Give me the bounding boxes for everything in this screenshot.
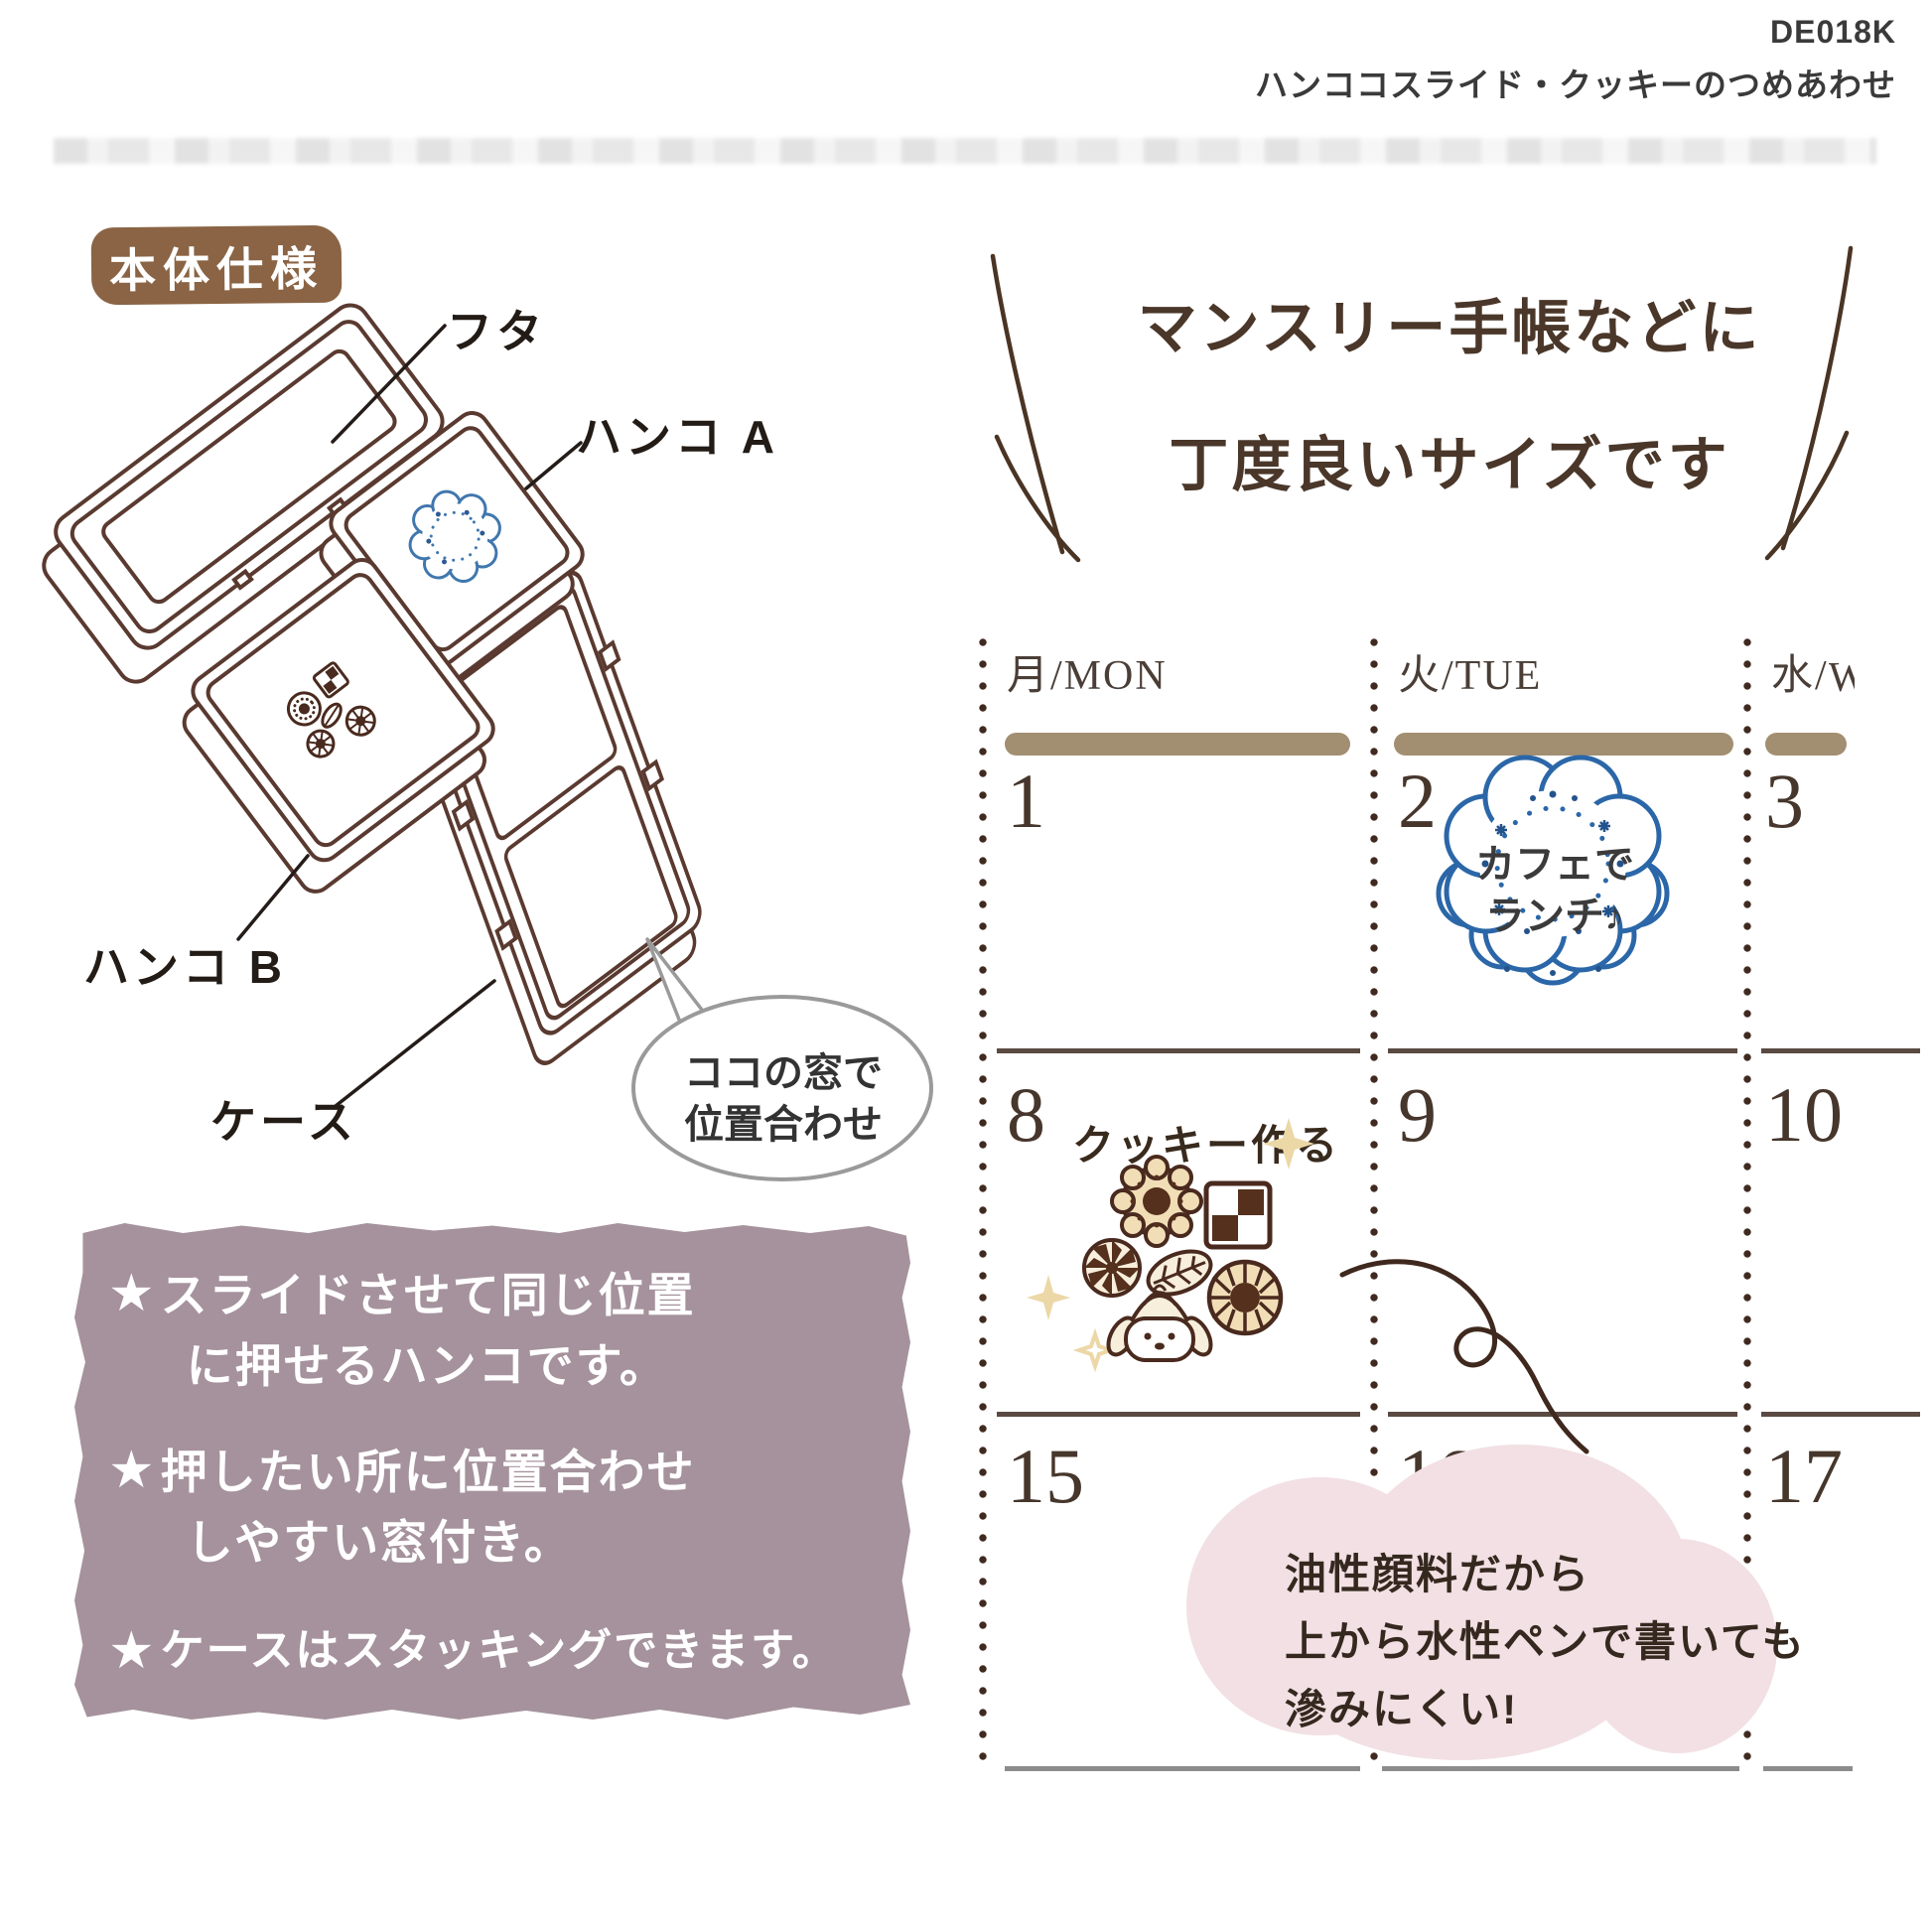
star-icon: ★: [108, 1438, 155, 1505]
calendar-date-16: 16: [1398, 1432, 1475, 1521]
cookie-note-text: クッキー作る: [1072, 1112, 1340, 1173]
calendar-date-9: 9: [1398, 1070, 1437, 1160]
label-stamp-a: ハンコ A: [576, 401, 778, 467]
ink-note-line3: 滲みにくい!: [1285, 1676, 1518, 1736]
calendar-header-bar: [1394, 733, 1733, 756]
calendar-header-bar: [1005, 733, 1350, 756]
loop-doodle: [1342, 1262, 1587, 1451]
emphasis-line: [993, 256, 1062, 552]
case-drawing: [404, 561, 719, 1070]
cafe-stamp-text-line2: ランチ♪: [1416, 884, 1694, 941]
product-name: ハンココスライド・クッキーのつめあわせ: [1255, 59, 1896, 106]
emphasis-line: [997, 437, 1078, 560]
calendar-row-separator: [1388, 1412, 1737, 1417]
header-wed-prefix: 水/: [1771, 653, 1829, 699]
calendar-date-1: 1: [1007, 757, 1045, 846]
pointer-lines: [238, 326, 581, 1106]
calendar-dotted-divider: [1743, 633, 1751, 1767]
cafe-stamp-text-line1: カフェで: [1416, 832, 1694, 890]
crinkle-cookie: [1209, 1262, 1281, 1333]
calendar-bottom-line: [1005, 1766, 1360, 1771]
feature-2-line1: 押したい所に位置合わせ: [161, 1438, 696, 1508]
label-case: ケース: [210, 1086, 357, 1152]
calendar-row-separator: [1761, 1048, 1920, 1053]
calendar-date-3: 3: [1765, 757, 1804, 846]
feature-3-line1: ケースはスタッキングできます。: [161, 1618, 838, 1684]
feature-item: ★ スライドさせて同じ位置 に押せるハンコです。: [108, 1261, 696, 1401]
feature-item: ★ 押したい所に位置合わせ しやすい窓付き。: [108, 1438, 696, 1578]
ink-note-line2: 上から水性ペンで書いても: [1285, 1608, 1806, 1669]
calendar-date-15: 15: [1007, 1432, 1084, 1521]
lid-drawing: [25, 298, 462, 689]
calendar-header-bar: [1765, 733, 1847, 756]
calendar-date-10: 10: [1765, 1070, 1843, 1160]
calendar-dotted-divider: [979, 633, 987, 1767]
calendar-row-separator: [997, 1412, 1360, 1417]
product-code: DE018K: [1255, 14, 1896, 51]
calendar-bottom-line: [1382, 1766, 1739, 1771]
product-header: DE018K ハンココスライド・クッキーのつめあわせ: [1255, 14, 1896, 106]
product-instruction-sheet: DE018K ハンココスライド・クッキーのつめあわせ 本体仕様: [0, 0, 1932, 1932]
calendar-row-separator: [997, 1048, 1360, 1053]
mini-cookie-stamps: [276, 662, 380, 767]
spec-badge: 本体仕様: [91, 225, 343, 306]
ink-note-line1: 油性顔料だから: [1285, 1541, 1590, 1601]
star-icon: ★: [108, 1618, 155, 1686]
label-stamp-b: ハンコ B: [83, 931, 286, 997]
size-heading-line2: 丁度良いサイズです: [1072, 417, 1827, 503]
scan-artifact-band: [54, 138, 1876, 164]
calendar-row-separator: [1761, 1412, 1920, 1417]
feature-item: ★ ケースはスタッキングできます。: [108, 1618, 838, 1686]
label-lid: フタ: [447, 296, 546, 361]
stamp-b-drawing: [166, 554, 511, 898]
stamp-a-drawing: [304, 407, 600, 701]
size-heading-line1: マンスリー手帳などに: [1072, 280, 1827, 366]
feature-1-line2: に押せるハンコです。: [161, 1331, 696, 1402]
star-icon: ★: [108, 1261, 155, 1328]
header-wed-cut-letter: W: [1829, 654, 1855, 702]
calendar-header-tue: 火/TUE: [1398, 641, 1542, 702]
features-box: ★ スライドさせて同じ位置 に押せるハンコです。 ★ 押したい所に位置合わせ し…: [74, 1223, 910, 1720]
calendar-header-wed: 水/W: [1771, 641, 1855, 702]
calendar-bottom-line: [1763, 1766, 1853, 1771]
puppy-cream-cookie: [1103, 1286, 1216, 1360]
calendar-date-8: 8: [1007, 1070, 1045, 1160]
checkered-cookie: [1206, 1183, 1270, 1247]
blue-doily-stamp-face: [394, 476, 516, 598]
bubble-text-line2: 位置合わせ: [659, 1092, 907, 1150]
bubble-text-line1: ココの窓で: [659, 1040, 907, 1098]
calendar-date-17: 17: [1765, 1432, 1843, 1521]
pinwheel-cookie: [1084, 1240, 1140, 1296]
exploded-parts-diagram: [0, 0, 973, 1201]
calendar-header-mon: 月/MON: [1007, 641, 1168, 702]
leaf-cookie: [1142, 1243, 1216, 1303]
calendar-row-separator: [1388, 1048, 1737, 1053]
feature-1-line1: スライドさせて同じ位置: [161, 1261, 696, 1331]
sparkle-outline-icon: [1079, 1334, 1111, 1366]
feature-2-line2: しやすい窓付き。: [161, 1508, 696, 1579]
